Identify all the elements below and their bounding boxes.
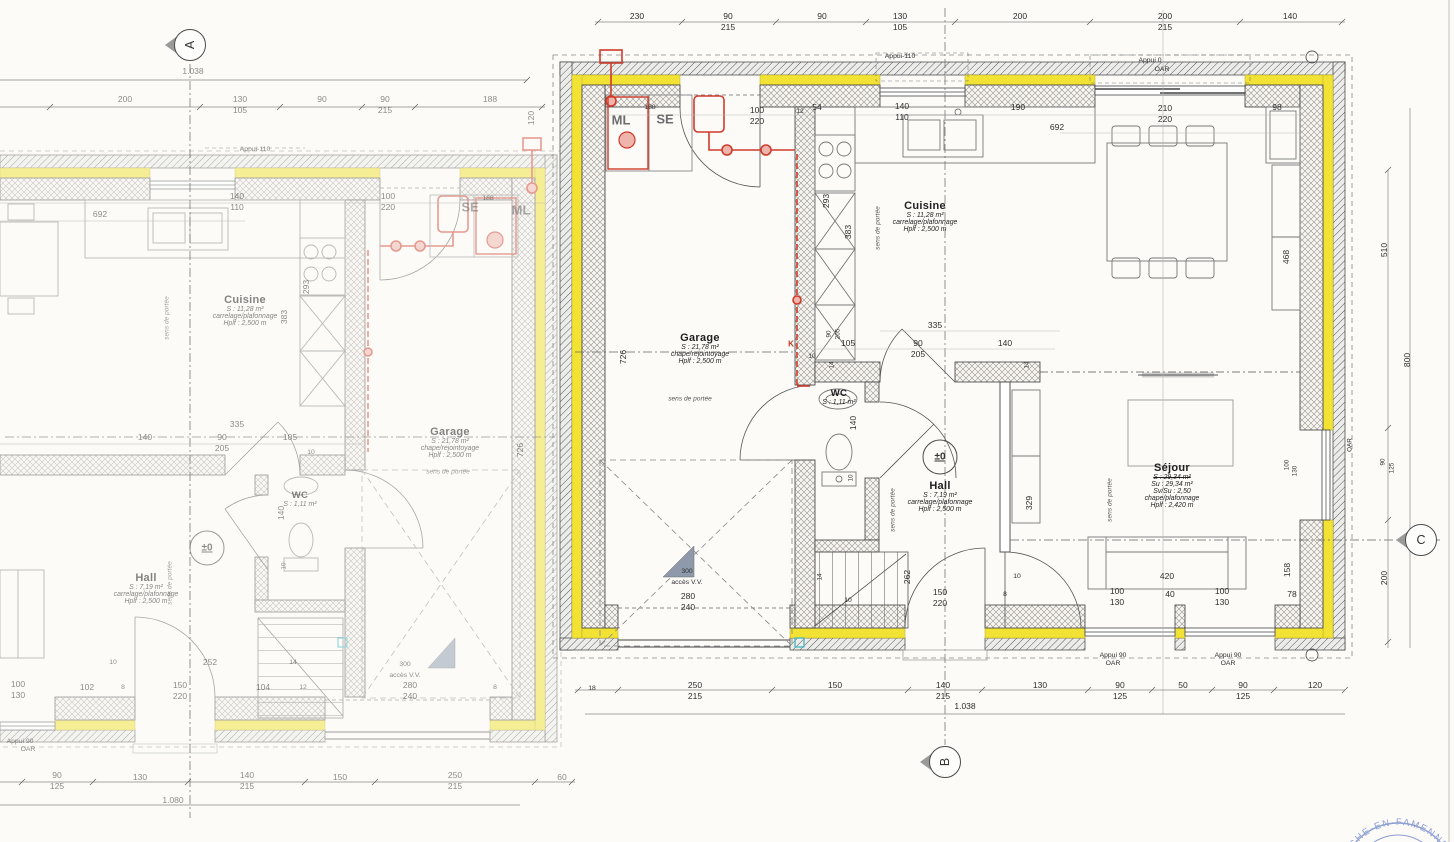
stamp-text: MARCHE-EN-FAMENNE <box>1336 817 1450 842</box>
floor-plan-drawing: MARCHE-EN-FAMENNE ✶ <box>0 0 1454 842</box>
plan-right-graphics <box>553 50 1352 661</box>
svg-text:MARCHE-EN-FAMENNE: MARCHE-EN-FAMENNE <box>1336 817 1450 842</box>
plan-left-graphics <box>0 138 561 753</box>
floor-plan-sheet: MARCHE-EN-FAMENNE ✶ 230 90215 90 130105 … <box>0 0 1454 842</box>
approval-stamp: MARCHE-EN-FAMENNE ✶ <box>1336 817 1454 842</box>
